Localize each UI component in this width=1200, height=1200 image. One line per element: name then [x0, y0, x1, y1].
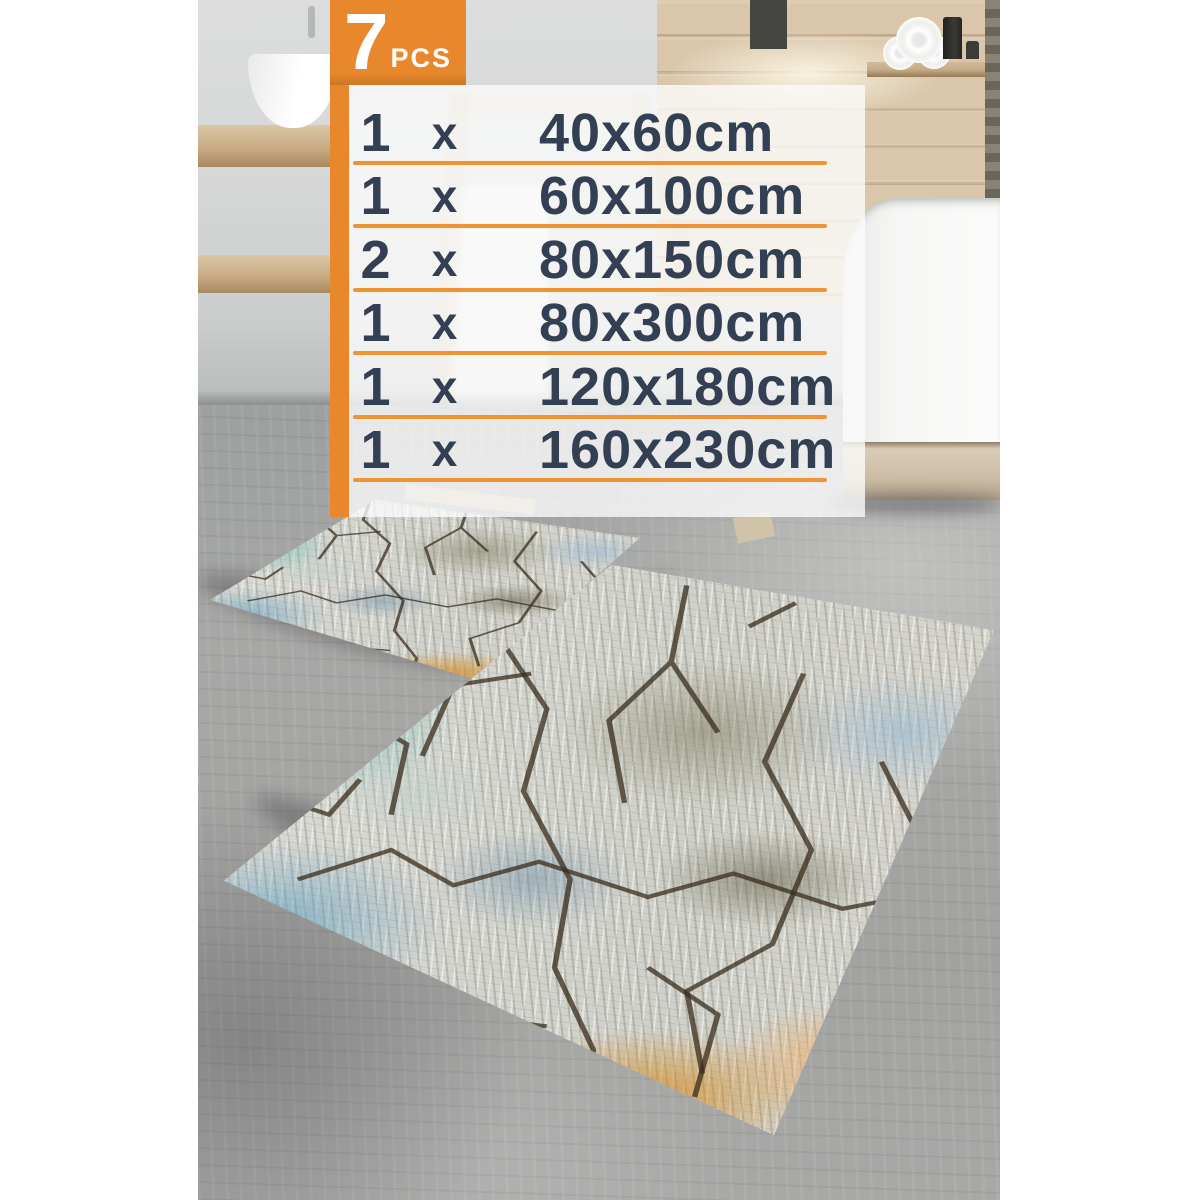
quantity-value: 1 [349, 169, 403, 223]
bathtub-base [843, 442, 1000, 500]
size-row: 1 x 60x100cm [349, 165, 865, 229]
multiply-sign: x [403, 237, 487, 283]
faucet [308, 6, 315, 38]
size-value: 160x230cm [487, 423, 865, 477]
size-value: 40x60cm [487, 106, 865, 160]
size-row: 1 x 120x180cm [349, 355, 865, 419]
quantity-value: 1 [349, 423, 403, 477]
multiply-sign: x [403, 110, 487, 156]
multiply-sign: x [403, 173, 487, 219]
bathtub [843, 198, 1000, 450]
size-row: 2 x 80x150cm [349, 228, 865, 292]
wooden-shelf-bottom [198, 255, 350, 293]
pieces-unit: PCS [390, 45, 452, 72]
size-value: 120x180cm [487, 360, 865, 414]
size-value: 80x150cm [487, 233, 865, 287]
size-value: 60x100cm [487, 169, 865, 223]
size-row: 1 x 80x300cm [349, 292, 865, 356]
cosmetic-bottle [943, 17, 962, 59]
size-row: 1 x 160x230cm [349, 419, 865, 483]
quantity-value: 1 [349, 360, 403, 414]
quantity-value: 2 [349, 233, 403, 287]
cosmetic-bottle [966, 41, 979, 59]
wall-fixture [750, 0, 787, 49]
multiply-sign: x [403, 300, 487, 346]
size-row: 1 x 40x60cm [349, 101, 865, 165]
quantity-value: 1 [349, 106, 403, 160]
wooden-shelf-top [198, 125, 350, 167]
quantity-value: 1 [349, 296, 403, 350]
pieces-badge: 7 PCS [330, 0, 466, 85]
multiply-sign: x [403, 427, 487, 473]
towel-roll [896, 17, 942, 63]
size-value: 80x300cm [487, 296, 865, 350]
multiply-sign: x [403, 364, 487, 410]
size-list-panel: 1 x 40x60cm 1 x 60x100cm 2 x 80x150cm 1 … [330, 85, 865, 517]
product-hero-image: 7 PCS 1 x 40x60cm 1 x 60x100cm 2 x 80x15… [0, 0, 1200, 1200]
pieces-count: 7 [344, 9, 387, 75]
